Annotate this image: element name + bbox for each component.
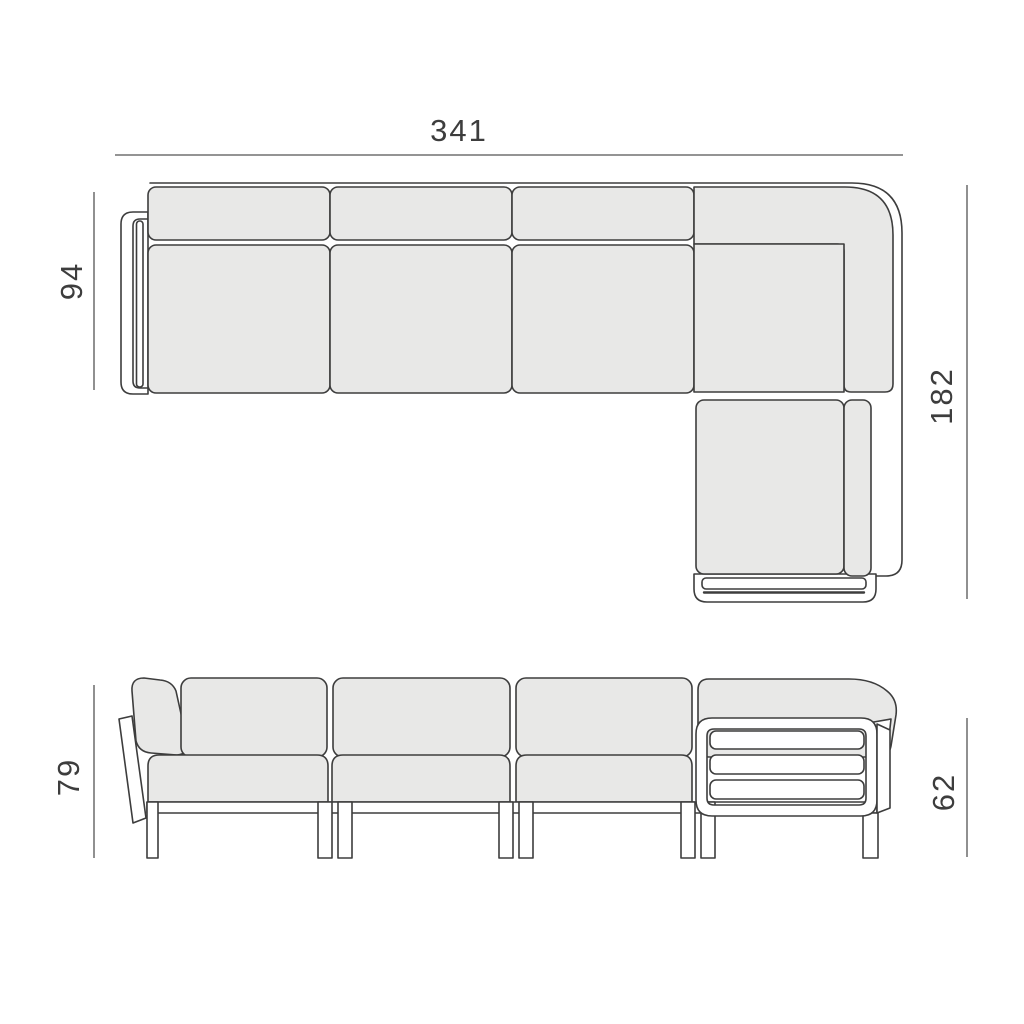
diagram-svg: 341 94 182 79 62 bbox=[0, 0, 1024, 1024]
plan-module2-seat bbox=[330, 245, 512, 393]
plan-chaise-armrest-slat bbox=[702, 578, 866, 589]
front-armrest-side-face bbox=[877, 724, 890, 813]
plan-module1-seat bbox=[148, 245, 330, 393]
front-leg bbox=[519, 802, 533, 858]
plan-corner-seat bbox=[694, 244, 844, 392]
front-leg bbox=[863, 813, 878, 858]
dimension-label-corner-depth: 182 bbox=[924, 367, 959, 425]
front-leg bbox=[147, 802, 158, 858]
front-leg bbox=[318, 802, 332, 858]
front-backrest-cushion-3 bbox=[516, 678, 692, 757]
sofa-dimension-diagram: 341 94 182 79 62 bbox=[0, 0, 1024, 1024]
plan-module1-backrest bbox=[148, 187, 330, 240]
plan-chaise-seat bbox=[696, 400, 844, 574]
front-left-cushion-profile bbox=[132, 678, 188, 755]
front-seat-cushion-3 bbox=[516, 755, 692, 802]
front-seat-cushion-2 bbox=[332, 755, 510, 802]
front-seat-cushion-1 bbox=[148, 755, 328, 802]
plan-module3-seat bbox=[512, 245, 694, 393]
front-view bbox=[119, 678, 896, 858]
front-leg bbox=[499, 802, 513, 858]
dimension-label-width: 341 bbox=[430, 113, 488, 148]
plan-module3-backrest bbox=[512, 187, 694, 240]
front-backrest-cushion-1 bbox=[181, 678, 327, 757]
plan-chaise-backrest-strip bbox=[844, 400, 871, 576]
plan-left-armrest bbox=[121, 212, 148, 394]
front-leg bbox=[681, 802, 695, 858]
dimension-label-arm-height: 62 bbox=[926, 773, 961, 811]
front-armrest-slat bbox=[710, 780, 864, 799]
plan-left-armrest-slat bbox=[137, 221, 144, 387]
dimension-label-height: 79 bbox=[51, 758, 86, 796]
front-armrest-slat bbox=[710, 755, 864, 774]
top-view bbox=[121, 183, 902, 602]
front-leg bbox=[338, 802, 352, 858]
dimension-label-depth: 94 bbox=[54, 262, 89, 300]
front-armrest-slat bbox=[710, 731, 864, 749]
plan-module2-backrest bbox=[330, 187, 512, 240]
front-backrest-cushion-2 bbox=[333, 678, 510, 757]
